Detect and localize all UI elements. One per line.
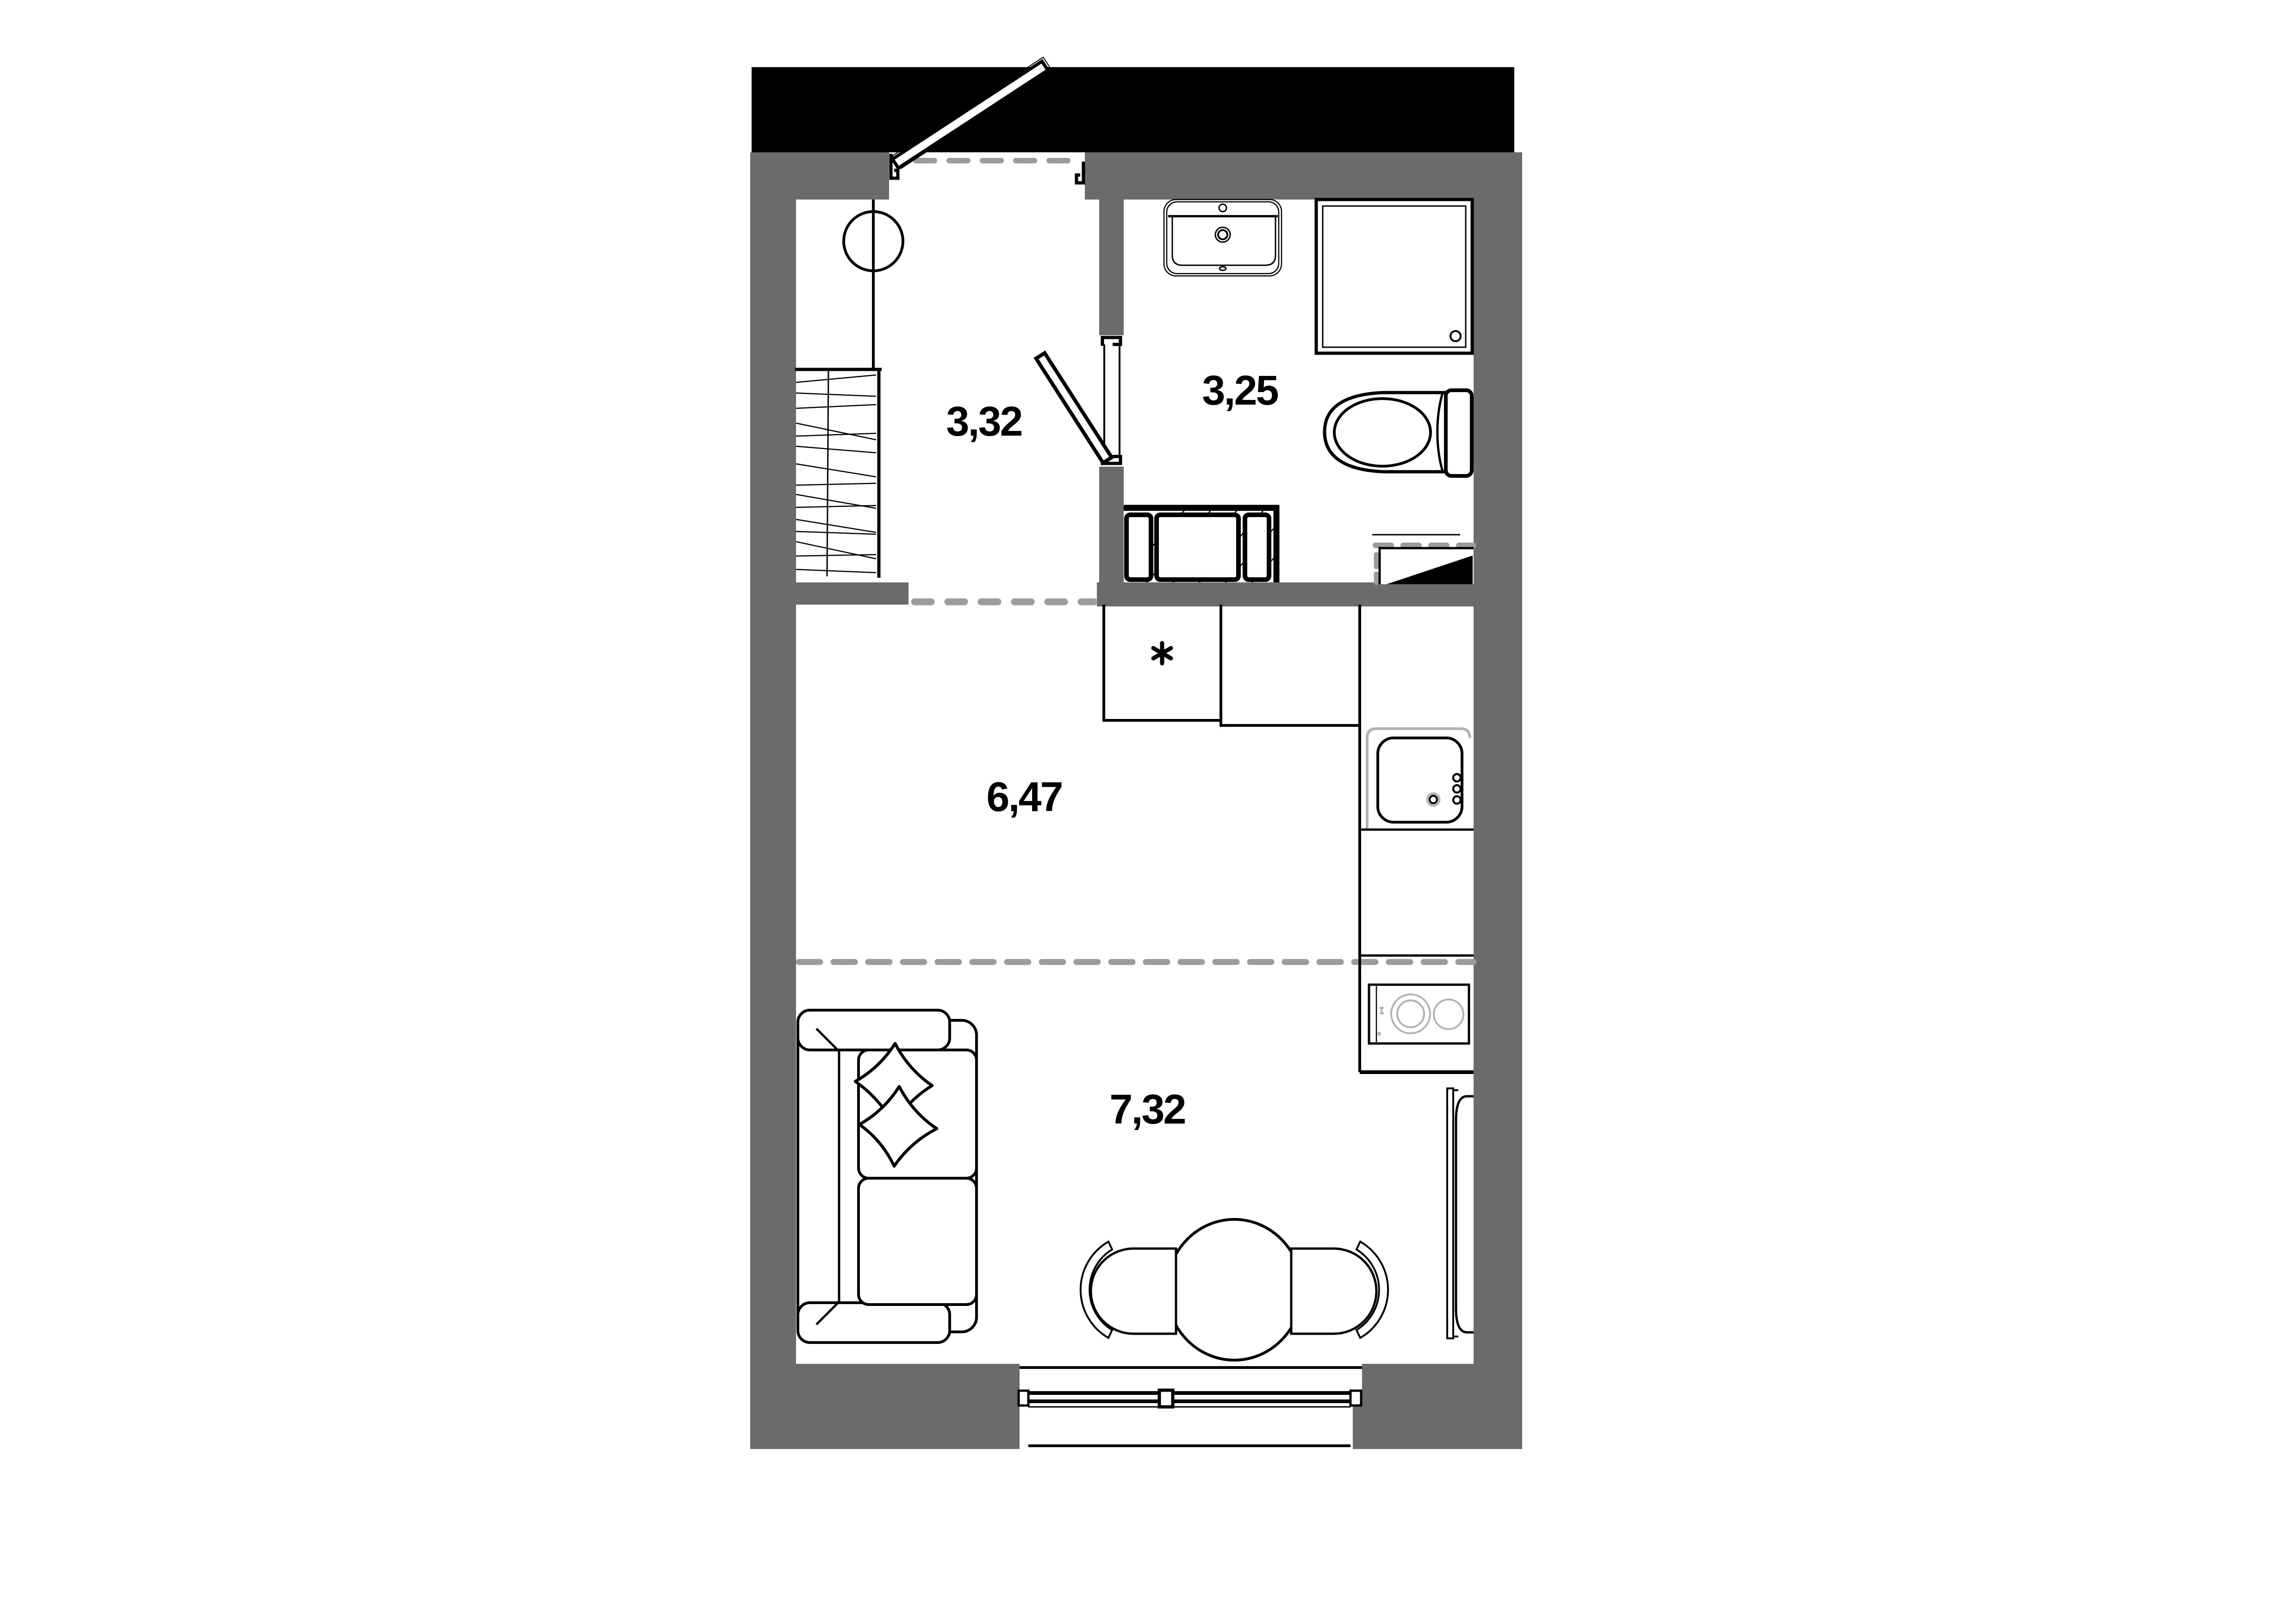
svg-text:3,25: 3,25 [1202,368,1278,414]
svg-text:3,32: 3,32 [946,399,1021,445]
svg-text:6,47: 6,47 [986,774,1062,820]
svg-text:7,32: 7,32 [1109,1087,1185,1133]
